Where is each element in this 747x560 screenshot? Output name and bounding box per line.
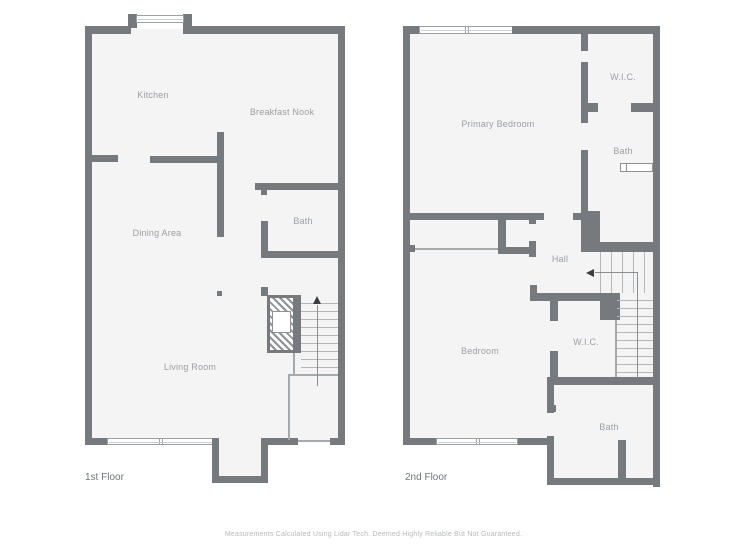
bath-sink-counter	[620, 163, 653, 172]
wall	[550, 351, 558, 379]
wall	[581, 150, 588, 214]
floor-plan-canvas: Kitchen Breakfast Nook Dining Area Bath …	[0, 0, 747, 560]
wall	[618, 440, 626, 480]
window	[436, 438, 518, 445]
wall	[653, 26, 660, 487]
stair-direction-line	[595, 272, 638, 273]
closet-door-line	[415, 248, 498, 250]
floor-label-2nd: 2nd Floor	[405, 472, 447, 483]
floor-fill-bath-ext	[551, 441, 653, 481]
room-label-wic-upper: W.I.C.	[610, 72, 636, 82]
wall-cap	[529, 241, 536, 257]
wall	[588, 242, 660, 252]
room-label-bedroom: Bedroom	[461, 346, 499, 356]
wall	[547, 377, 660, 385]
wall-nub	[407, 245, 415, 252]
wall	[498, 247, 529, 254]
room-label-hall: Hall	[552, 254, 568, 264]
window-pane-divider	[465, 27, 469, 33]
wall-nub	[529, 213, 536, 224]
wall	[581, 32, 588, 51]
wall	[403, 26, 410, 445]
room-label-bath-upper: Bath	[613, 146, 632, 156]
wall	[631, 103, 655, 112]
staircase-treads-lower	[617, 293, 653, 377]
window-pane-divider	[476, 439, 480, 444]
wall	[581, 62, 588, 123]
wall	[547, 478, 660, 485]
room-label-primary-bedroom: Primary Bedroom	[461, 119, 534, 129]
stairs-down-arrow-icon	[586, 269, 594, 277]
wall-nub	[549, 405, 556, 412]
wall	[550, 299, 558, 321]
sink-divider-line	[626, 164, 627, 171]
window	[419, 26, 514, 34]
floorplan-2nd-floor: Primary Bedroom W.I.C. Bath Hall Bedroom…	[0, 0, 747, 560]
wall	[498, 220, 506, 248]
wall	[406, 213, 544, 220]
stair-direction-line	[637, 272, 638, 377]
wall	[588, 103, 598, 112]
room-label-bath-lower: Bath	[599, 422, 618, 432]
wall-nub	[573, 213, 581, 220]
room-label-wic-lower: W.I.C.	[573, 337, 599, 347]
measurement-disclaimer: Measurements Calculated Using Lidar Tech…	[0, 531, 747, 538]
